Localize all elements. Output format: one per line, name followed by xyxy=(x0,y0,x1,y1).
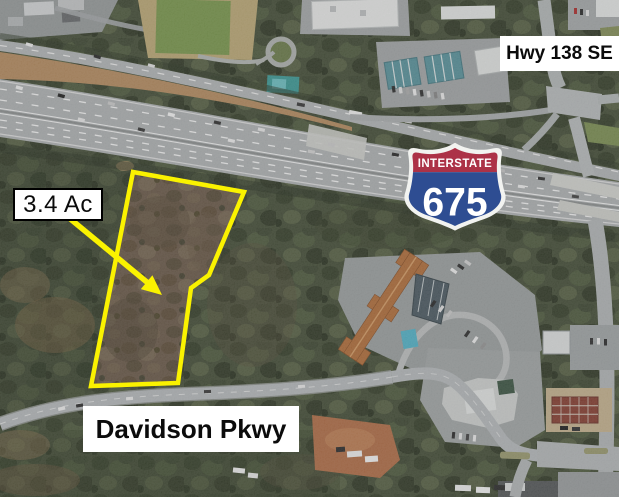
shield-header-text: INTERSTATE xyxy=(418,158,492,170)
hwy-138-label: Hwy 138 SE xyxy=(500,36,619,71)
interstate-shield-icon: INTERSTATE 675 xyxy=(404,141,506,231)
shield-number-text: 675 xyxy=(422,180,487,224)
parcel-area-label: 3.4 Ac xyxy=(13,188,103,221)
davidson-pkwy-label: Davidson Pkwy xyxy=(83,406,299,452)
aerial-map: 3.4 Ac Hwy 138 SE Davidson Pkwy INTERSTA… xyxy=(0,0,619,497)
